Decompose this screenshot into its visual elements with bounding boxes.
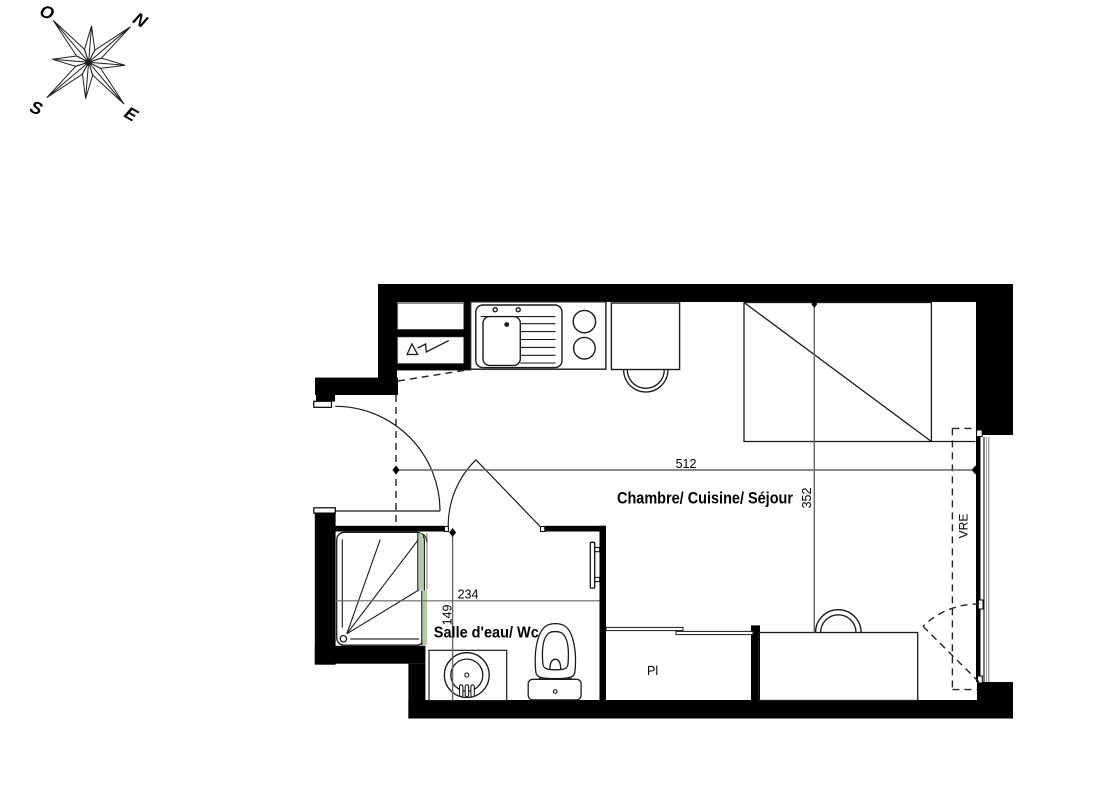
svg-text:Chambre/ Cuisine/ Séjour: Chambre/ Cuisine/ Séjour [617, 490, 794, 508]
svg-text:Salle d'eau/ Wc: Salle d'eau/ Wc [434, 624, 539, 641]
svg-text:149: 149 [441, 605, 455, 626]
svg-text:512: 512 [676, 457, 697, 471]
svg-text:VRE: VRE [957, 514, 971, 539]
svg-text:Pl: Pl [647, 664, 658, 678]
svg-text:352: 352 [800, 488, 814, 509]
svg-text:234: 234 [458, 587, 479, 601]
